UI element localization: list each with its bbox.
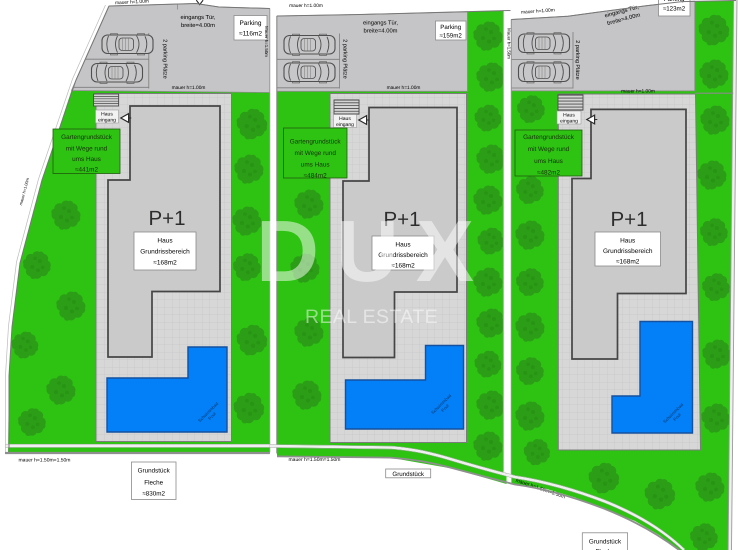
svg-text:≈168m2: ≈168m2 <box>153 259 177 266</box>
svg-text:mauer h=1.50m=1.50m: mauer h=1.50m=1.50m <box>19 458 71 464</box>
svg-text:mauer h=1.00m: mauer h=1.00m <box>289 3 323 9</box>
svg-text:REAL ESTATE: REAL ESTATE <box>305 306 438 328</box>
svg-text:Grundstück: Grundstück <box>392 471 425 478</box>
svg-text:ums Haus: ums Haus <box>534 158 563 165</box>
svg-text:Mauer h=1.50m: Mauer h=1.50m <box>507 28 512 59</box>
svg-text:≈482m2: ≈482m2 <box>537 169 560 176</box>
svg-text:Grundstück: Grundstück <box>589 539 622 546</box>
svg-text:breite=4.00m: breite=4.00m <box>181 22 215 29</box>
svg-text:Mauer h=1.50m: Mauer h=1.50m <box>264 26 269 57</box>
svg-text:≈441m2: ≈441m2 <box>75 167 98 174</box>
svg-text:ums Haus: ums Haus <box>301 161 330 168</box>
svg-text:≈123m2: ≈123m2 <box>663 6 686 13</box>
svg-text:Grundrissbereich: Grundrissbereich <box>140 249 190 256</box>
svg-text:Haus: Haus <box>157 238 173 245</box>
svg-text:mauer h=1.00m: mauer h=1.00m <box>172 85 206 91</box>
svg-text:2 parking Plätze: 2 parking Plätze <box>574 40 580 79</box>
svg-text:mit Wege rund: mit Wege rund <box>528 146 570 153</box>
svg-text:≈168m2: ≈168m2 <box>616 259 640 266</box>
svg-text:P+1: P+1 <box>610 208 647 231</box>
svg-text:P+1: P+1 <box>148 207 185 230</box>
svg-text:eingangs Tür,: eingangs Tür, <box>180 14 215 21</box>
svg-text:Grundrissbereich: Grundrissbereich <box>603 248 653 255</box>
svg-text:mit Wege rund: mit Wege rund <box>66 146 108 153</box>
svg-text:Gartengrundstück: Gartengrundstück <box>290 138 342 145</box>
svg-text:2 parking Plätze: 2 parking Plätze <box>342 39 348 78</box>
svg-text:mit Wege rund: mit Wege rund <box>294 150 336 157</box>
svg-text:mauer h=1.50m=1.50m: mauer h=1.50m=1.50m <box>289 457 341 463</box>
svg-text:eingang: eingang <box>336 122 354 128</box>
svg-text:mauer h=1.00m: mauer h=1.00m <box>621 89 655 95</box>
svg-text:eingang: eingang <box>560 119 578 125</box>
svg-text:eingangs Tür,: eingangs Tür, <box>363 19 398 26</box>
svg-text:Grundstück: Grundstück <box>138 468 171 475</box>
svg-text:eingang: eingang <box>98 118 116 124</box>
svg-text:Parking: Parking <box>440 24 462 31</box>
svg-text:Gartengrundstück: Gartengrundstück <box>523 134 575 141</box>
svg-text:≈484m2: ≈484m2 <box>304 172 327 179</box>
svg-text:Haus: Haus <box>620 237 636 244</box>
svg-text:≈830m2: ≈830m2 <box>142 491 165 498</box>
svg-text:ums Haus: ums Haus <box>72 156 101 163</box>
svg-text:mauer h=1.00m: mauer h=1.00m <box>387 85 421 91</box>
svg-text:Fleche: Fleche <box>144 479 163 486</box>
svg-text:Gartengrundstück: Gartengrundstück <box>61 134 113 141</box>
svg-text:≈116m2: ≈116m2 <box>239 31 262 38</box>
svg-text:breite=4.00m: breite=4.00m <box>364 27 398 34</box>
svg-text:Parking: Parking <box>239 20 261 27</box>
svg-text:≈159m2: ≈159m2 <box>440 33 463 40</box>
svg-text:2 parking Plätze: 2 parking Plätze <box>162 39 168 78</box>
svg-text:DUX: DUX <box>256 203 491 300</box>
